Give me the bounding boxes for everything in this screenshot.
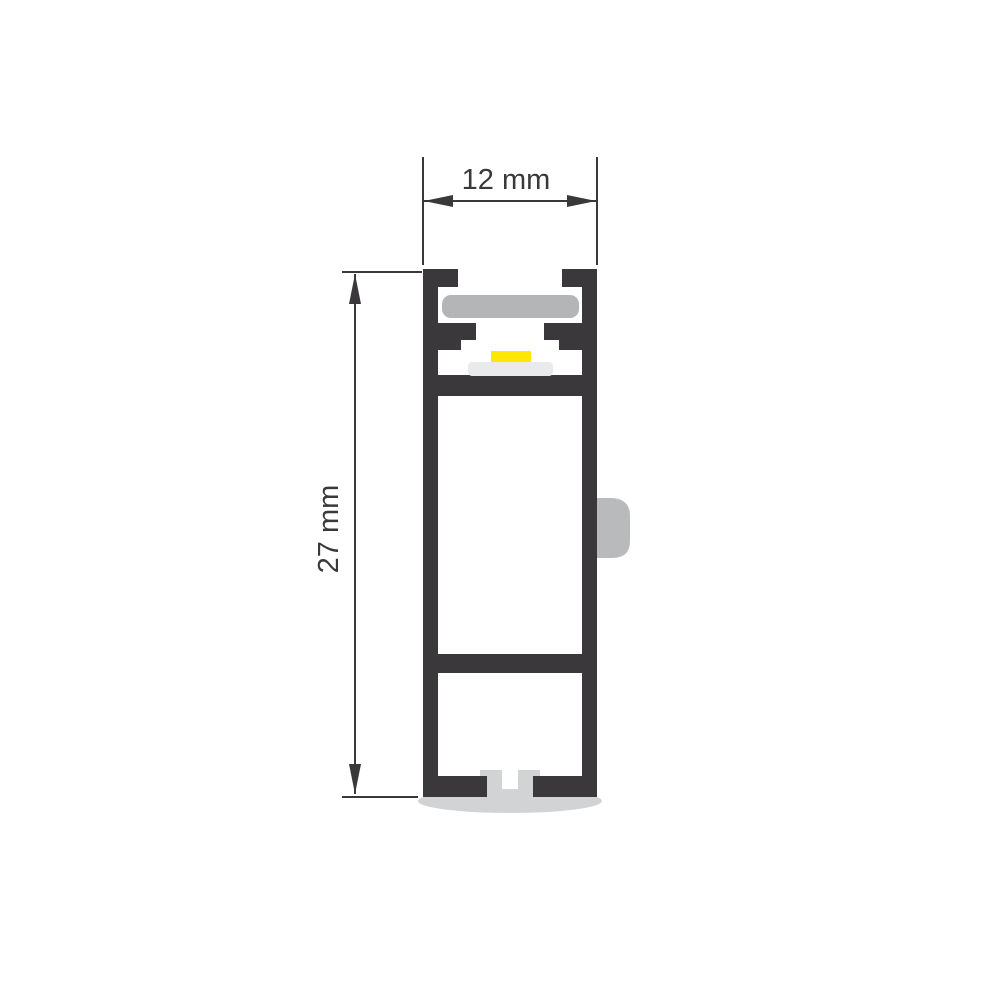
profile-bottom-flange-left [423, 776, 487, 797]
profile-step-right [559, 340, 582, 350]
technical-drawing-canvas: 12 mm 27 mm [0, 0, 1001, 1001]
diffuser-cover [442, 295, 579, 318]
profile-wall-left [423, 269, 438, 797]
profile-top-hook-right [562, 269, 597, 287]
profile-top-hook-left [423, 269, 458, 287]
led-pcb [468, 362, 553, 376]
height-dimension: 27 mm [313, 272, 422, 797]
profile-ledge-left [438, 323, 476, 340]
width-dimension-label: 12 mm [462, 164, 551, 196]
profile-bottom-flange-right [533, 776, 597, 797]
profile-body [423, 269, 597, 797]
width-arrow-left [424, 195, 453, 207]
height-arrow-bottom [349, 764, 361, 794]
led-strip [491, 351, 531, 362]
height-arrow-top [349, 274, 361, 304]
profile-wall-right [582, 269, 597, 797]
profile-led-channel-floor [438, 375, 582, 396]
profile-step-left [438, 340, 461, 350]
profile-ledge-right [544, 323, 582, 340]
height-dimension-label: 27 mm [313, 485, 345, 574]
profile-crossbar [423, 654, 597, 673]
width-dimension: 12 mm [423, 157, 597, 265]
profile-cross-section-drawing: 12 mm 27 mm [0, 0, 1001, 1001]
width-arrow-right [567, 195, 596, 207]
side-clip-bump [597, 498, 630, 558]
